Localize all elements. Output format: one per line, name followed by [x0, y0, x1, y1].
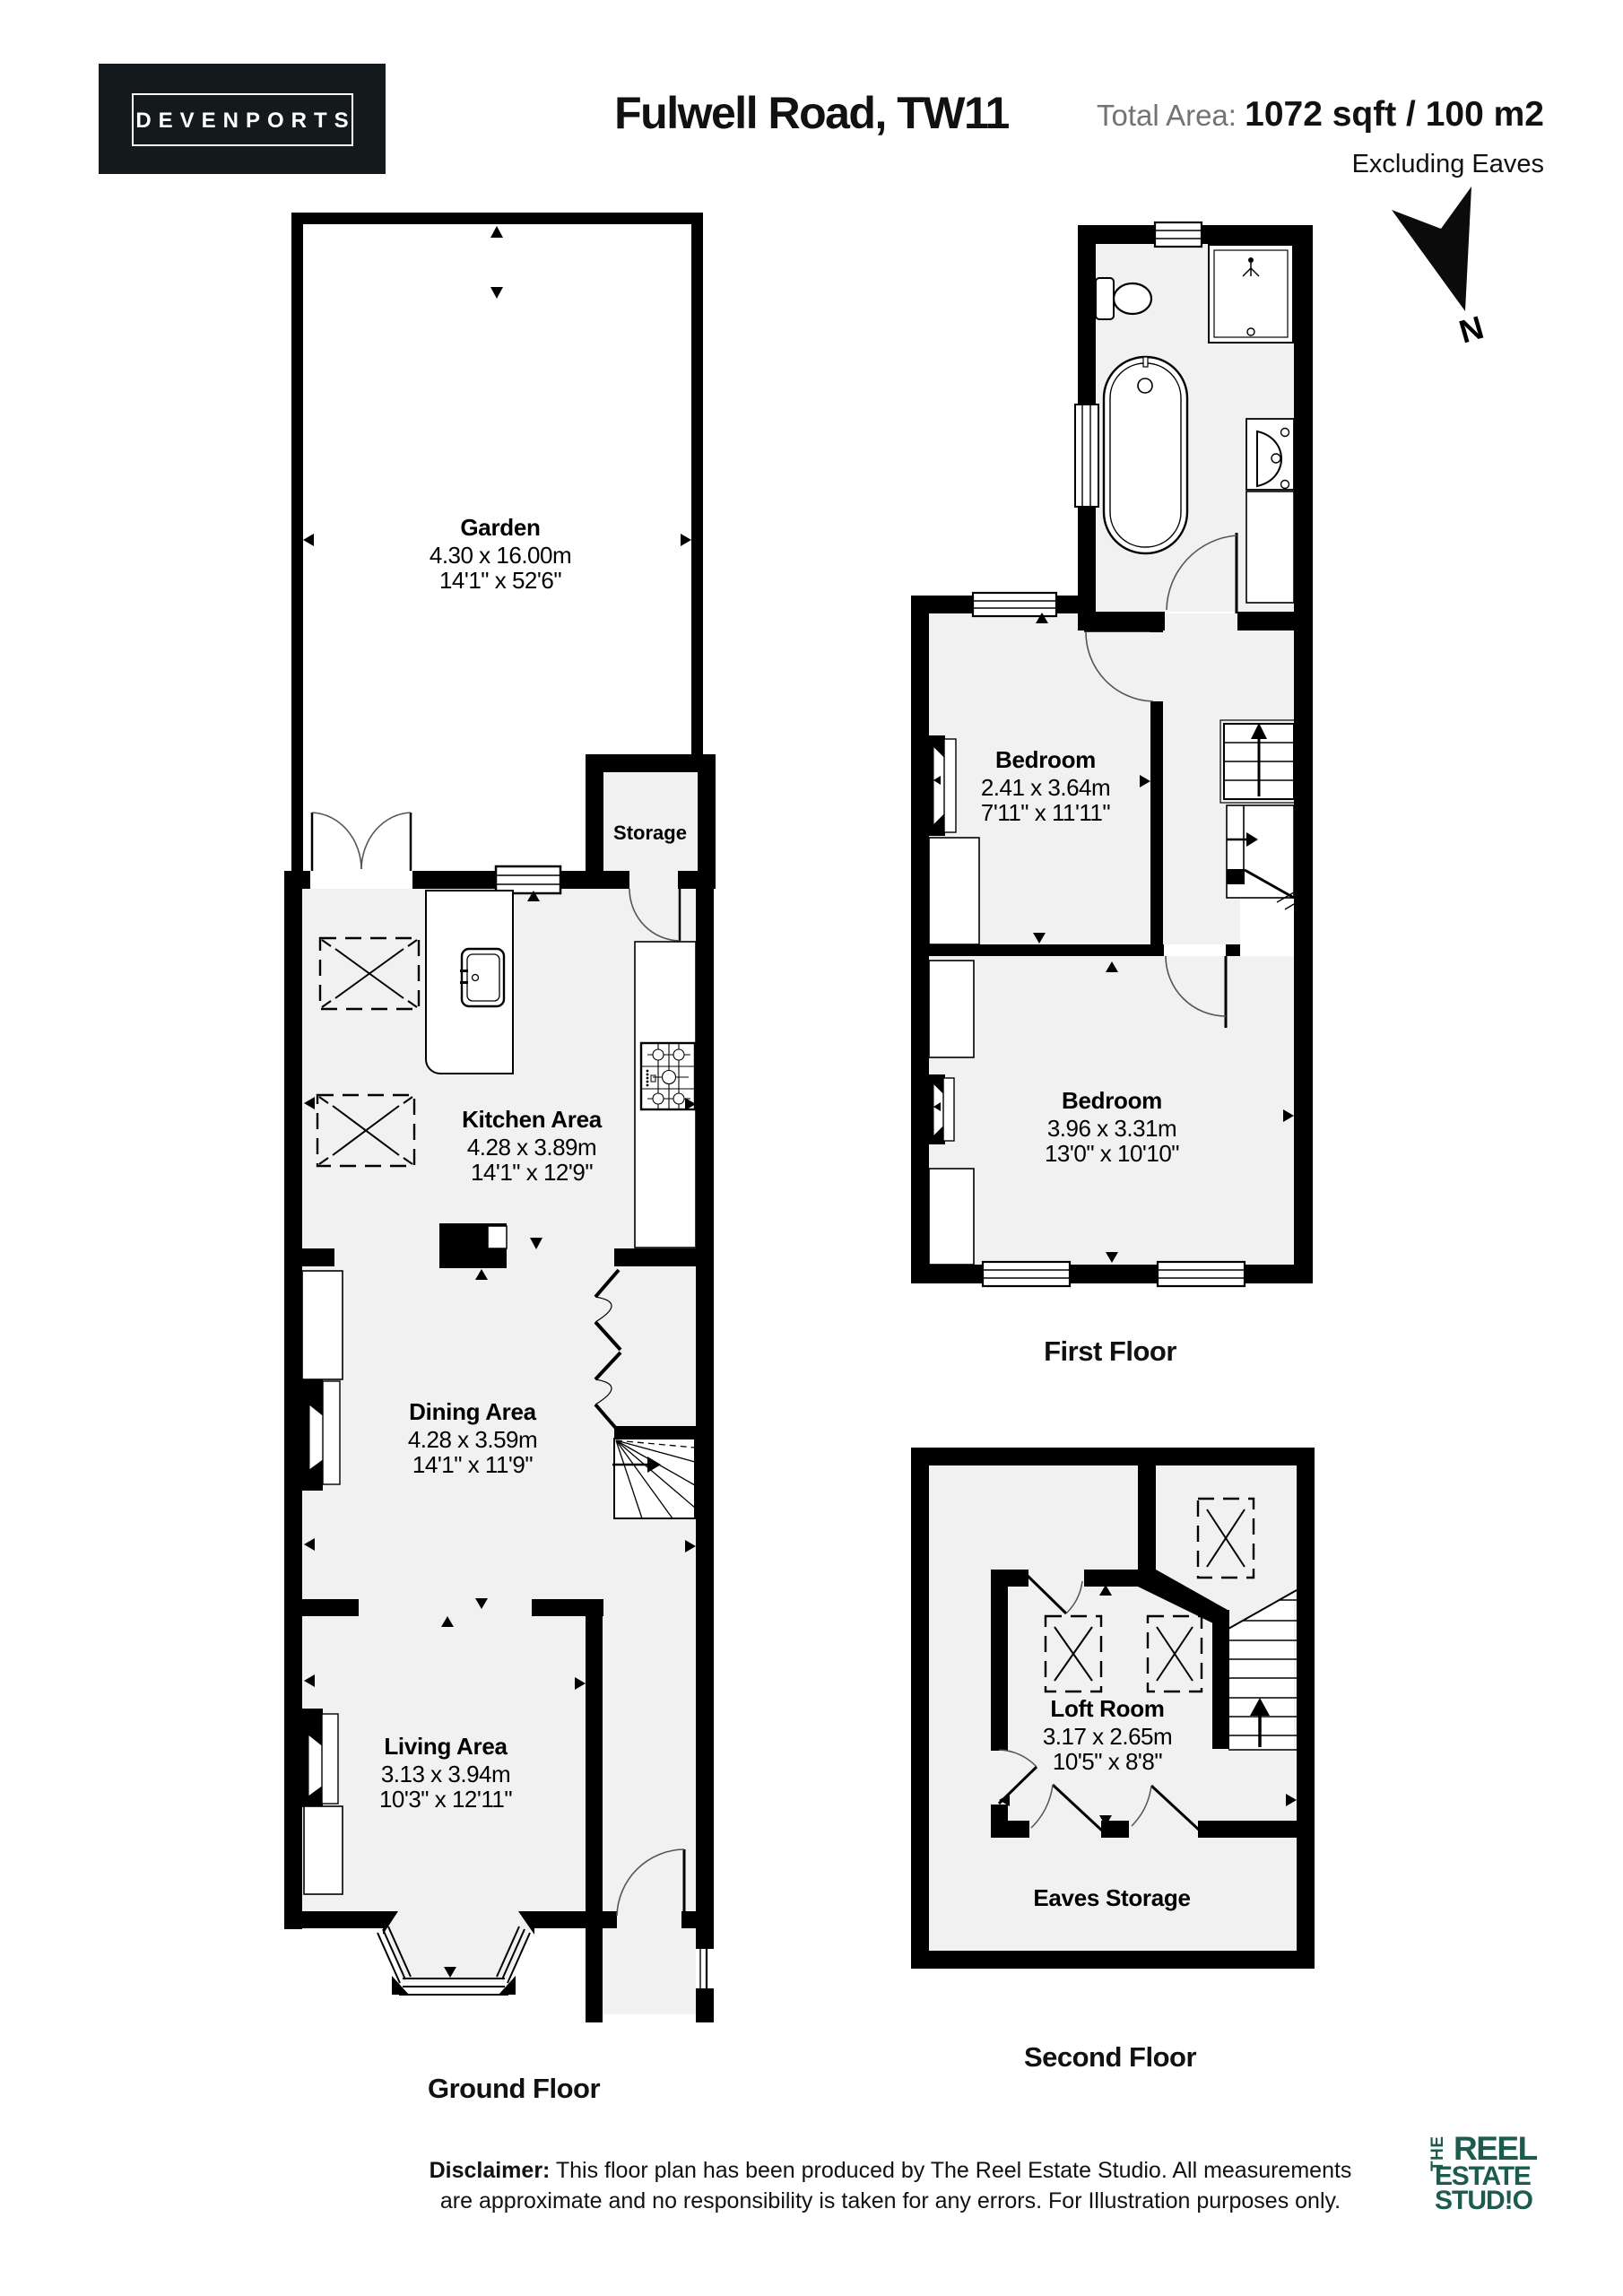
svg-text:3.13 x 3.94m: 3.13 x 3.94m	[381, 1761, 510, 1787]
svg-text:are approximate and no respons: are approximate and no responsibility is…	[440, 2188, 1341, 2213]
svg-text:4.30 x 16.00m: 4.30 x 16.00m	[430, 542, 571, 569]
svg-text:14'1" x 52'6": 14'1" x 52'6"	[439, 567, 561, 594]
svg-text:Disclaimer: This floor plan ha: Disclaimer: This floor plan has been pro…	[430, 2158, 1352, 2183]
svg-text:4.28 x 3.89m: 4.28 x 3.89m	[467, 1134, 596, 1161]
svg-text:Bedroom: Bedroom	[995, 746, 1096, 773]
svg-text:Loft Room: Loft Room	[1050, 1695, 1164, 1722]
svg-text:Bedroom: Bedroom	[1062, 1087, 1162, 1114]
svg-text:4.28 x 3.59m: 4.28 x 3.59m	[408, 1426, 537, 1453]
svg-text:Kitchen Area: Kitchen Area	[462, 1106, 603, 1133]
svg-text:10'5" x 8'8": 10'5" x 8'8"	[1053, 1748, 1162, 1775]
svg-text:STUD!O: STUD!O	[1435, 2186, 1533, 2215]
svg-text:DEVENPORTS: DEVENPORTS	[135, 109, 355, 133]
svg-text:13'0" x 10'10": 13'0" x 10'10"	[1045, 1140, 1179, 1167]
svg-text:First Floor: First Floor	[1044, 1335, 1176, 1367]
svg-text:3.17 x 2.65m: 3.17 x 2.65m	[1043, 1723, 1172, 1750]
svg-text:14'1" x 12'9": 14'1" x 12'9"	[471, 1159, 593, 1186]
svg-text:Living Area: Living Area	[384, 1733, 508, 1760]
svg-text:2.41 x 3.64m: 2.41 x 3.64m	[981, 774, 1110, 801]
svg-text:14'1" x 11'9": 14'1" x 11'9"	[412, 1451, 533, 1478]
svg-text:Garden: Garden	[460, 514, 540, 541]
svg-text:10'3" x 12'11": 10'3" x 12'11"	[379, 1786, 512, 1813]
svg-text:Second Floor: Second Floor	[1024, 2041, 1197, 2073]
svg-text:Dining Area: Dining Area	[409, 1398, 536, 1425]
svg-text:Excluding Eaves: Excluding Eaves	[1352, 150, 1544, 178]
svg-text:Storage: Storage	[613, 822, 687, 844]
svg-text:Total Area: 1072 sqft / 100 m2: Total Area: 1072 sqft / 100 m2	[1097, 95, 1544, 134]
svg-text:3.96 x 3.31m: 3.96 x 3.31m	[1047, 1115, 1176, 1142]
svg-text:Fulwell Road, TW11: Fulwell Road, TW11	[614, 88, 1009, 138]
svg-text:7'11" x 11'11": 7'11" x 11'11"	[981, 799, 1111, 826]
svg-text:Eaves Storage: Eaves Storage	[1033, 1884, 1190, 1911]
svg-text:Ground Floor: Ground Floor	[428, 2073, 600, 2104]
